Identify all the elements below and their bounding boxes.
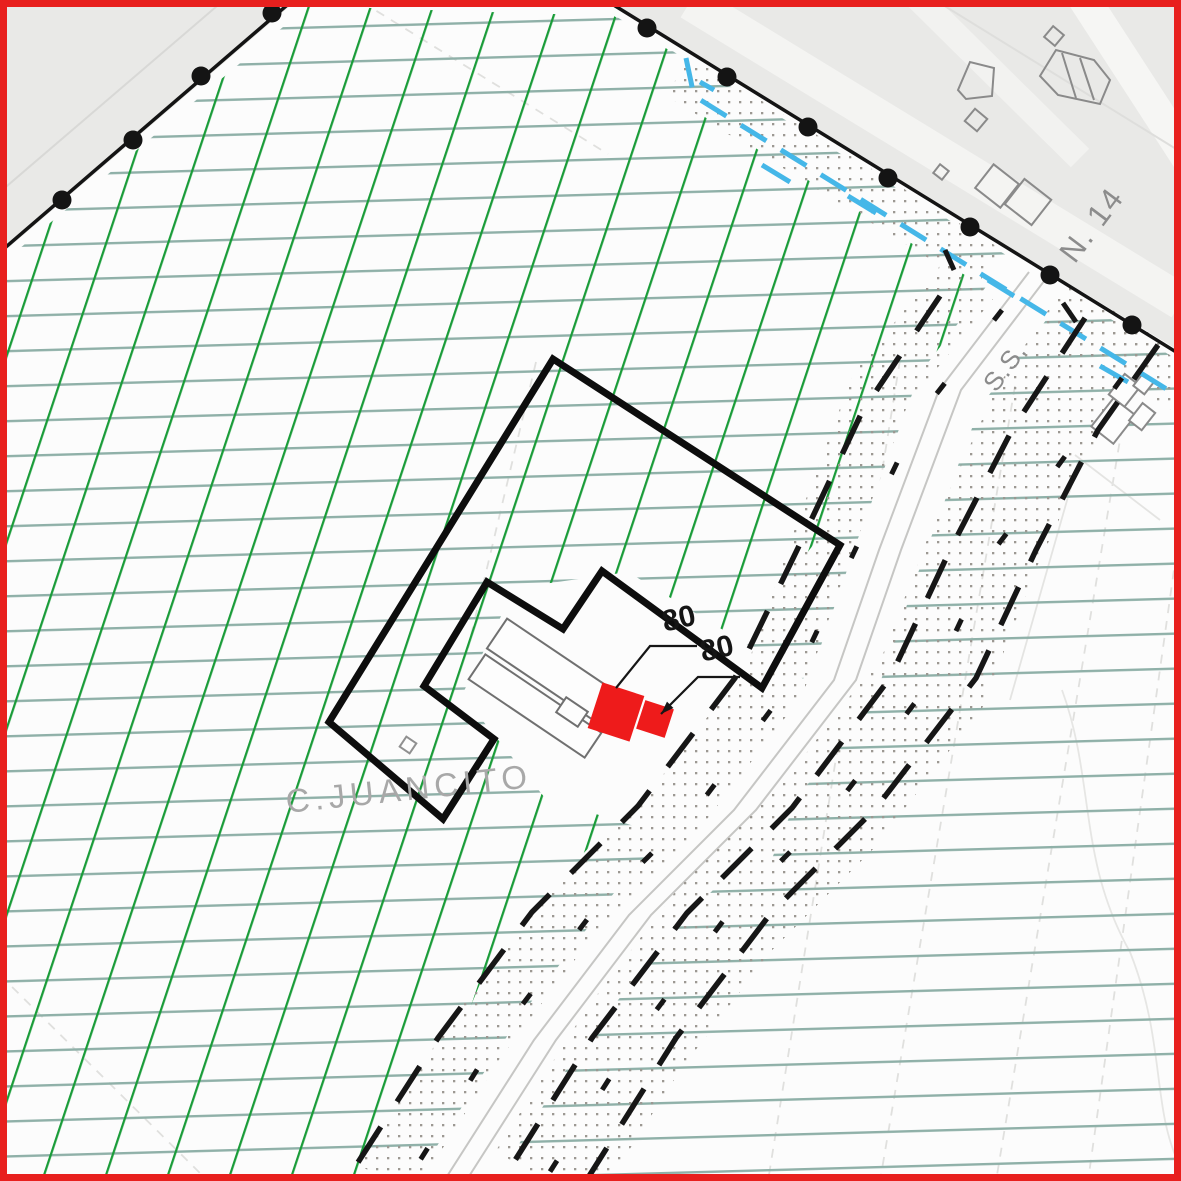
cadastral-map: N. 14 xyxy=(0,0,1181,1181)
map-viewport: N. 14 xyxy=(0,0,1181,1181)
